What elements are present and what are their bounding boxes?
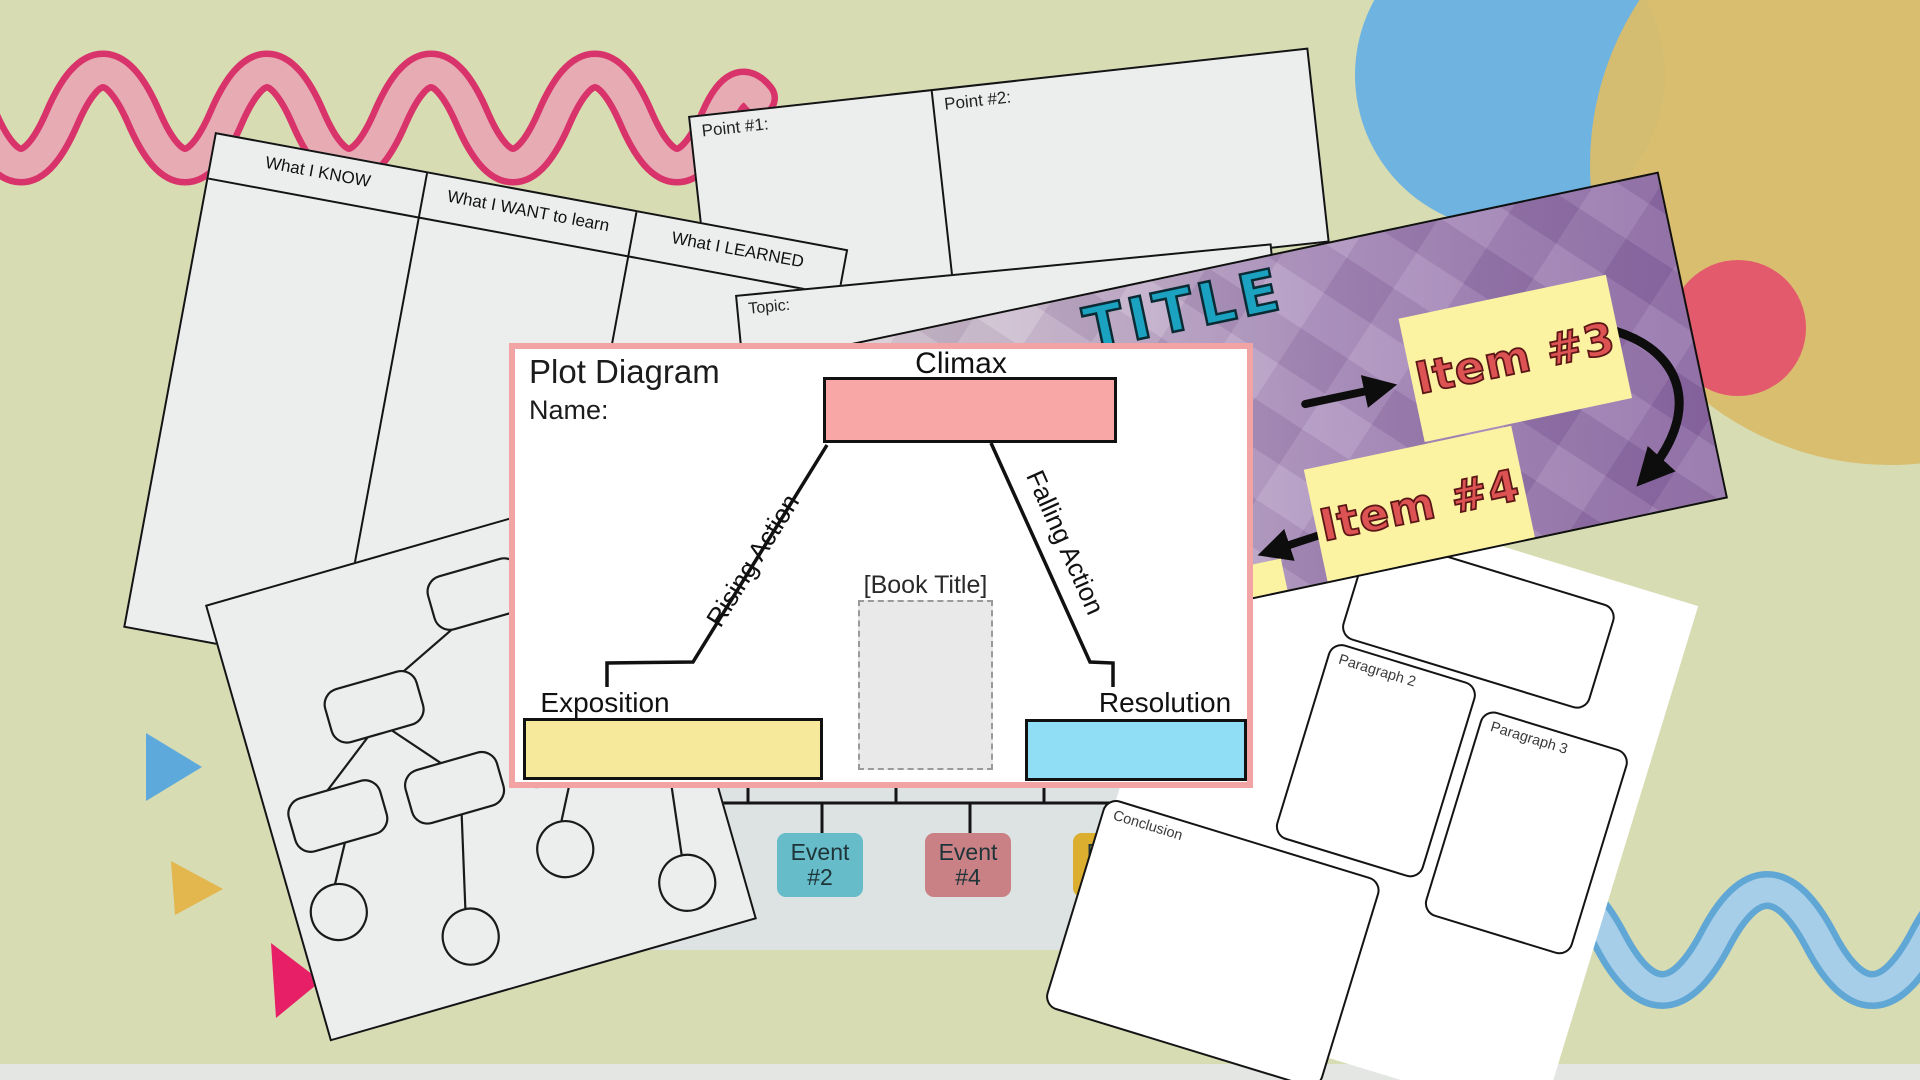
plot-diagram-card[interactable]: Plot Diagram Name: Climax Rising Action … (509, 343, 1253, 788)
event-4-line1: Event (939, 840, 998, 865)
paragraph-3-label: Paragraph 3 (1488, 719, 1569, 758)
item-4-label: Item #4 (1315, 459, 1524, 551)
pink-squiggle-icon (0, 71, 758, 166)
right-arrow-icon (1305, 387, 1387, 404)
event-2-box: Event #2 (777, 833, 863, 897)
book-title-box[interactable] (858, 600, 993, 770)
point2-label: Point #2: (943, 88, 1012, 115)
event-4-box: Event #4 (925, 833, 1011, 897)
conclusion-label: Conclusion (1111, 808, 1184, 844)
event-4-line2: #4 (955, 865, 981, 890)
event-2-line1: Event (791, 840, 850, 865)
resolution-box (1025, 719, 1247, 781)
curved-arrow-icon (1613, 322, 1694, 478)
bottom-strip (0, 1064, 1920, 1080)
point1-label: Point #1: (701, 114, 770, 141)
template-collage-canvas: Point #1: Point #2: What I KNOW What I W… (0, 0, 1920, 1080)
topic-label: Topic: (748, 297, 791, 319)
blue-triangle-icon (146, 733, 202, 801)
paragraph-2-label: Paragraph 2 (1337, 652, 1418, 691)
point-chart-divider (931, 91, 954, 282)
event-2-line2: #2 (807, 865, 833, 890)
resolution-label: Resolution (1085, 687, 1245, 719)
item-3-label: Item #3 (1411, 312, 1620, 404)
book-title-label: [Book Title] (838, 571, 1013, 600)
exposition-label: Exposition (525, 687, 685, 719)
yellow-triangle-icon (171, 861, 223, 915)
exposition-box (523, 718, 823, 780)
